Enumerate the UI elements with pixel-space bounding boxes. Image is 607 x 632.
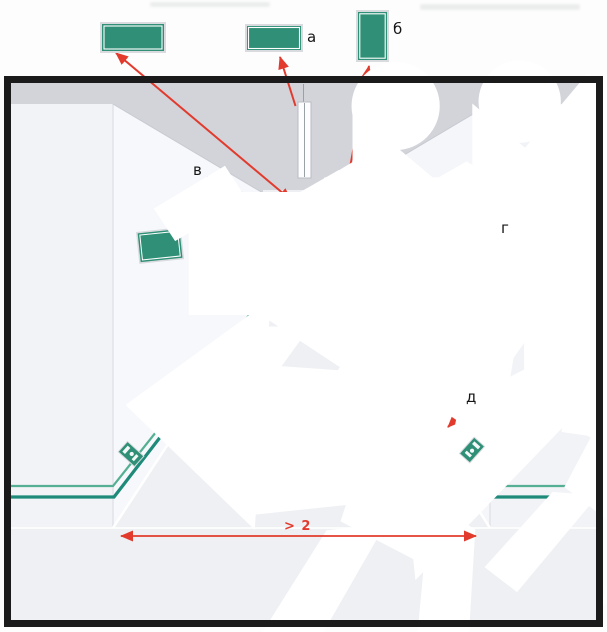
label-a: а	[307, 30, 316, 45]
label-g: г	[501, 221, 509, 236]
label-d: д	[466, 390, 476, 405]
corridor-scene	[0, 0, 607, 632]
figure-canvas: а б в г д > 2	[0, 0, 607, 632]
label-b: б	[393, 22, 402, 37]
dimension-label: > 2	[284, 520, 311, 533]
label-v: в	[193, 163, 202, 178]
